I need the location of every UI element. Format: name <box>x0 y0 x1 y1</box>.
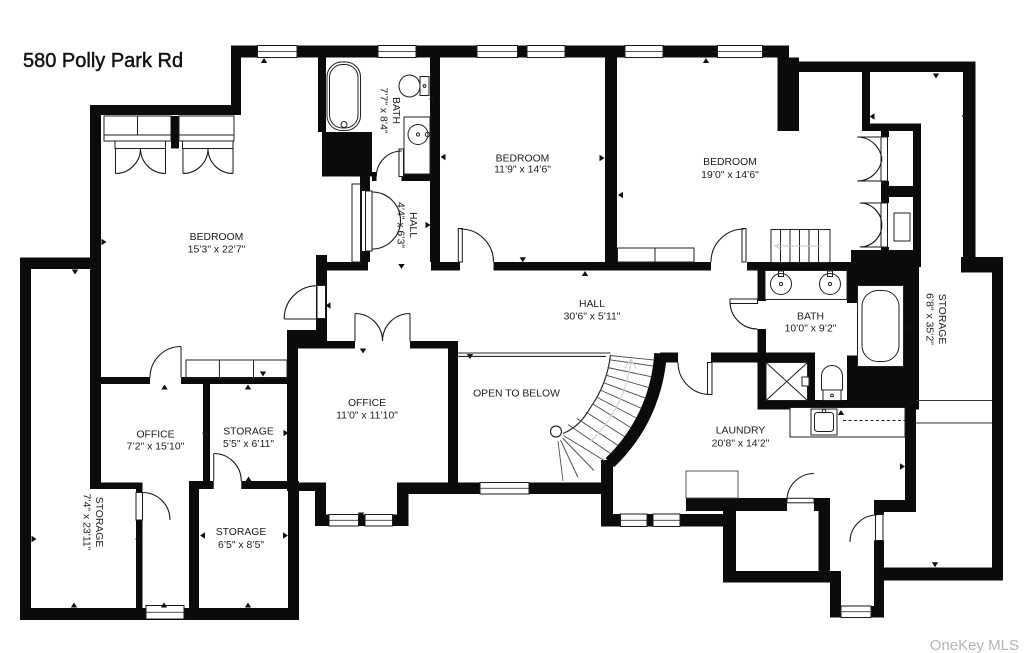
svg-text:11’9" x 14’6": 11’9" x 14’6" <box>494 165 551 176</box>
svg-text:19’0" x 14’6": 19’0" x 14’6" <box>701 170 759 181</box>
svg-text:STORAGE: STORAGE <box>936 294 947 345</box>
svg-text:BEDROOM: BEDROOM <box>190 232 244 243</box>
svg-text:STORAGE: STORAGE <box>93 497 104 548</box>
svg-text:OFFICE: OFFICE <box>136 430 174 441</box>
svg-text:20’8" x 14’2": 20’8" x 14’2" <box>712 439 770 450</box>
svg-text:4’4" x 6’3": 4’4" x 6’3" <box>395 202 406 248</box>
svg-text:6’5" x 8’5": 6’5" x 8’5" <box>218 540 264 551</box>
svg-text:LAUNDRY: LAUNDRY <box>716 426 766 437</box>
svg-text:OFFICE: OFFICE <box>348 398 386 409</box>
svg-text:BATH: BATH <box>797 312 824 323</box>
svg-text:7’2" x 15’10": 7’2" x 15’10" <box>127 442 185 453</box>
svg-text:STORAGE: STORAGE <box>223 427 274 438</box>
svg-text:15’3" x 22’7": 15’3" x 22’7" <box>188 245 246 256</box>
svg-text:OPEN TO BELOW: OPEN TO BELOW <box>473 389 560 400</box>
svg-text:HALL: HALL <box>407 212 418 238</box>
svg-text:7’4" x 23’11": 7’4" x 23’11" <box>81 494 92 551</box>
svg-text:6’8" x 35’2": 6’8" x 35’2" <box>924 293 935 345</box>
svg-text:BEDROOM: BEDROOM <box>703 157 757 168</box>
svg-text:OneKey MLS: OneKey MLS <box>930 637 1019 653</box>
svg-text:10’0" x 9’2": 10’0" x 9’2" <box>785 324 837 335</box>
svg-text:HALL: HALL <box>579 299 605 310</box>
svg-text:30’6" x 5’11": 30’6" x 5’11" <box>564 312 621 323</box>
svg-text:BEDROOM: BEDROOM <box>496 154 550 165</box>
svg-text:11’0" x 11’10": 11’0" x 11’10" <box>336 411 398 422</box>
svg-text:STORAGE: STORAGE <box>216 527 267 538</box>
svg-text:7’7" x 8’4": 7’7" x 8’4" <box>378 87 389 133</box>
svg-text:580 Polly Park Rd: 580 Polly Park Rd <box>23 50 183 72</box>
svg-text:5’5" x 6’11": 5’5" x 6’11" <box>223 439 274 450</box>
svg-text:BATH: BATH <box>390 97 401 124</box>
